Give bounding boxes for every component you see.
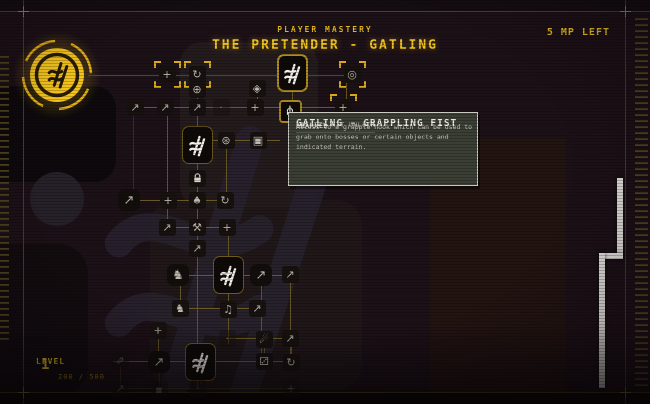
skill-node-gatling-bottom[interactable]	[185, 343, 216, 381]
skill-node-arrow-b3[interactable]: ↗	[189, 99, 206, 116]
skill-node-arrow-e1[interactable]: ↗	[159, 219, 176, 236]
frame-cross-icon	[620, 6, 631, 17]
skill-connector	[292, 92, 293, 100]
skill-node-orb[interactable]: ⊕	[189, 81, 206, 98]
skill-connector	[88, 75, 352, 76]
skill-node-lock[interactable]	[189, 170, 206, 187]
skill-node-arrow-f4[interactable]: ↗	[282, 266, 299, 283]
skill-node-arrow-b2[interactable]: ↗	[157, 99, 174, 116]
skill-node-empty-b4[interactable]: ·	[213, 99, 230, 116]
skill-node-arrow-e4[interactable]: ↗	[189, 240, 206, 257]
frame-cross-icon	[620, 387, 631, 398]
frame-line-bottom	[0, 392, 650, 393]
decor-jog-line	[617, 178, 623, 259]
skill-node-arrow-i1[interactable]: ↗	[148, 351, 170, 373]
skill-node-spin-i4[interactable]: ↻	[283, 354, 300, 371]
skill-node-turret[interactable]: ◎	[344, 66, 361, 83]
skill-node-note[interactable]: ♫	[220, 301, 237, 318]
skill-node-die[interactable]: ⚂	[256, 353, 273, 370]
skill-node-sq-j2[interactable]: ▪	[151, 381, 168, 398]
skill-node-knight-f1[interactable]: ♞	[167, 264, 189, 286]
frame-line-right	[625, 0, 626, 404]
skill-node-plus-e3[interactable]: +	[219, 219, 236, 236]
skill-node-plus-d2[interactable]: +	[160, 192, 177, 209]
skill-node-empty-h1[interactable]: ·	[219, 330, 236, 347]
skill-node-panel[interactable]: ▣	[250, 132, 267, 149]
skill-node-knight-g1[interactable]: ♞	[172, 300, 189, 317]
frame-cross-icon	[18, 387, 29, 398]
mastery-screen: PLAYER MASTERY THE PRETENDER - GATLING 5…	[0, 0, 650, 404]
skill-node-spin-a2[interactable]: ↻	[189, 66, 206, 83]
skill-node-plus-h0[interactable]: +	[150, 322, 167, 339]
skill-tooltip: GATLING - GRAPPLING FIST ABILITY KIT UNL…	[288, 112, 478, 186]
tooltip-status-badge: LEARNED	[296, 122, 328, 130]
skill-node-gatling-top[interactable]	[277, 54, 308, 92]
skill-node-plus-a1[interactable]: +	[159, 66, 176, 83]
level-value: 1	[41, 357, 49, 373]
skill-node-arrow-b1[interactable]: ↗	[127, 99, 144, 116]
skill-node-spin-d4[interactable]: ↻	[217, 192, 234, 209]
skill-node-dblarrow[interactable]: ⇗	[112, 352, 129, 369]
skill-node-gatling-mid[interactable]	[182, 126, 213, 164]
skill-node-hammer[interactable]: ⚒	[189, 219, 206, 236]
skill-node-arrow-j1[interactable]: ↗	[112, 380, 129, 397]
skill-connector	[180, 308, 257, 309]
right-ruler-ticks	[635, 14, 648, 390]
skill-node-arrow-f3[interactable]: ↗	[250, 264, 272, 286]
skill-node-arrow-g3[interactable]: ↗	[249, 300, 266, 317]
gatling-mastery-badge-icon[interactable]	[17, 35, 97, 115]
mastery-points-left: 5 MP LEFT	[547, 27, 610, 38]
skill-node-burst[interactable]: ⊛	[218, 132, 235, 149]
bottom-band	[0, 393, 650, 404]
xp-progress: 200 / 500	[58, 373, 105, 381]
skill-connector	[133, 113, 134, 192]
top-band	[0, 0, 650, 11]
skill-node-gatling-low[interactable]	[213, 256, 244, 294]
skill-node-plus-b5[interactable]: +	[247, 99, 264, 116]
skill-node-spade[interactable]: ♠	[189, 192, 206, 209]
skill-node-arrow-d1[interactable]: ↗	[118, 189, 140, 211]
frame-line-top	[0, 11, 650, 12]
skill-node-dot-j3[interactable]: ·	[190, 380, 207, 397]
skill-connector	[226, 146, 227, 196]
skill-node-arrow-h3[interactable]: ↗	[282, 330, 299, 347]
decor-jog-line	[599, 253, 605, 388]
skill-connector	[129, 200, 227, 201]
skill-node-plus-j4[interactable]: +	[283, 380, 300, 397]
skill-node-gem[interactable]: ◈	[249, 80, 266, 97]
skill-node-comet[interactable]: ☄	[256, 331, 273, 348]
frame-cross-icon	[18, 6, 29, 17]
